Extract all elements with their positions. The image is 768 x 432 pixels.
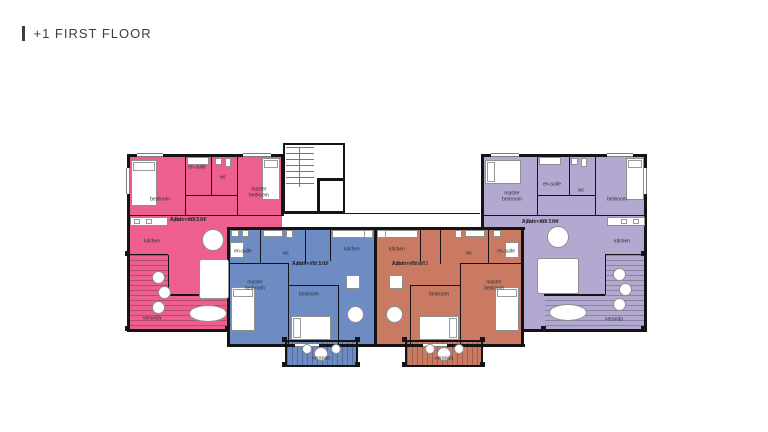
wall xyxy=(488,228,489,264)
room-label-bedroom: bedroom xyxy=(150,197,170,203)
table xyxy=(389,275,403,289)
apartment-101-spec: 2 Bdr - 80.2 m² xyxy=(170,217,207,224)
pillow xyxy=(628,160,642,168)
stairs-icon xyxy=(286,147,314,187)
apartment-104-spec: 2 Bdr - 80.7 m² xyxy=(522,219,559,226)
sink xyxy=(493,230,501,237)
wall xyxy=(374,344,525,347)
room-label-ensuite: en-suite xyxy=(543,182,561,188)
wall xyxy=(410,285,461,286)
wall xyxy=(605,255,606,295)
toilet xyxy=(225,158,231,167)
room-label-kitchen: kitchen xyxy=(389,247,405,253)
room-label-ensuite: en-suite xyxy=(188,165,206,171)
chair xyxy=(619,283,632,296)
toilet xyxy=(581,158,587,167)
pillow xyxy=(264,160,278,168)
chair xyxy=(425,344,435,354)
room-label-master-bedroom: master bedroom xyxy=(479,281,509,292)
wall xyxy=(317,178,345,181)
wall xyxy=(544,294,605,296)
room-label-wc: wc xyxy=(578,188,584,194)
room-label-master-bedroom: master bedroom xyxy=(240,281,270,292)
wall xyxy=(211,155,212,195)
room-label-bedroom: bedroom xyxy=(299,292,319,298)
chair xyxy=(613,268,626,281)
wall xyxy=(127,329,230,332)
room-label-bedroom: bedroom xyxy=(607,197,627,203)
wall xyxy=(228,263,289,264)
chair xyxy=(454,344,464,354)
bathtub xyxy=(539,157,561,165)
wall xyxy=(185,155,186,215)
room-label-ensuite: en-suite xyxy=(234,249,252,255)
stair-rail xyxy=(299,147,300,187)
page-title: +1 FIRST FLOOR xyxy=(34,26,152,41)
sink xyxy=(621,219,627,224)
wall xyxy=(482,215,645,216)
wall xyxy=(338,285,339,345)
window xyxy=(491,153,519,157)
page-title-block: +1 FIRST FLOOR xyxy=(22,26,152,41)
column xyxy=(355,337,360,342)
chair xyxy=(613,298,626,311)
wall xyxy=(288,285,339,286)
wall xyxy=(281,154,284,216)
stove xyxy=(134,219,140,224)
fridge xyxy=(377,230,386,238)
room-label-veranda: veranda xyxy=(312,356,330,362)
wall xyxy=(537,155,538,215)
room-label-bedroom: bedroom xyxy=(429,292,449,298)
wall xyxy=(330,228,331,261)
rug xyxy=(386,306,403,323)
wall xyxy=(460,263,521,264)
veranda-table xyxy=(549,304,587,321)
room-label-kitchen: kitchen xyxy=(344,247,360,253)
dining-table xyxy=(202,229,224,251)
column xyxy=(125,251,130,256)
wall xyxy=(460,263,461,345)
sink xyxy=(571,158,578,165)
wall xyxy=(260,228,261,264)
apartment-102-spec: 2 Bdr - 75.1 m² xyxy=(292,261,329,268)
window xyxy=(126,168,130,194)
sink xyxy=(146,219,152,224)
column xyxy=(355,362,360,367)
window xyxy=(607,153,633,157)
title-accent-bar xyxy=(22,26,25,41)
column xyxy=(641,326,646,331)
floor-plan: bedroom en-suite wc master bedroom kitch… xyxy=(125,140,648,370)
room-label-kitchen: kitchen xyxy=(614,239,630,245)
room-label-veranda: veranda xyxy=(605,317,623,323)
dining-table xyxy=(547,226,569,248)
toilet xyxy=(242,230,249,237)
room-label-kitchen: kitchen xyxy=(144,239,160,245)
wall xyxy=(317,178,320,213)
sofa xyxy=(199,259,229,299)
wall xyxy=(569,155,570,195)
column xyxy=(125,326,130,331)
column xyxy=(225,326,230,331)
chair xyxy=(152,301,165,314)
wall xyxy=(305,228,306,264)
column xyxy=(402,337,407,342)
column xyxy=(480,337,485,342)
window xyxy=(243,153,271,157)
room-label-veranda: veranda xyxy=(143,316,161,322)
column xyxy=(641,251,646,256)
room-label-ensuite: en-suite xyxy=(497,249,515,255)
pillow xyxy=(133,162,155,171)
wall xyxy=(288,263,289,345)
apartment-103-spec: 2 Bdr - 75 m² xyxy=(392,261,424,268)
toilet xyxy=(286,230,293,238)
column xyxy=(541,326,546,331)
wall xyxy=(537,195,595,196)
wall xyxy=(410,285,411,345)
wall xyxy=(128,215,282,216)
table xyxy=(346,275,360,289)
wall xyxy=(595,155,596,215)
wall xyxy=(128,254,168,256)
column xyxy=(282,362,287,367)
bathroom-counter xyxy=(263,230,283,237)
wall xyxy=(440,228,441,264)
wall xyxy=(374,227,377,347)
column xyxy=(402,362,407,367)
chair xyxy=(331,344,341,354)
chair xyxy=(152,271,165,284)
pillow xyxy=(293,318,301,338)
sofa xyxy=(537,258,579,294)
room-label-master-bedroom: master bedroom xyxy=(244,188,274,199)
fridge xyxy=(364,230,373,238)
room-label-wc: wc xyxy=(466,251,472,257)
veranda-table xyxy=(189,305,227,322)
room-label-veranda: veranda xyxy=(435,356,453,362)
chair xyxy=(158,286,171,299)
wall xyxy=(481,154,484,230)
rug xyxy=(347,306,364,323)
stove xyxy=(633,219,639,224)
wall xyxy=(420,228,421,261)
room-label-wc: wc xyxy=(220,175,226,181)
room-label-master-bedroom: master bedroom xyxy=(497,192,527,203)
bathroom-counter xyxy=(465,230,485,237)
column xyxy=(282,337,287,342)
wall xyxy=(237,155,238,215)
column xyxy=(480,362,485,367)
pillow xyxy=(449,318,457,338)
wall xyxy=(542,329,647,332)
room-label-wc: wc xyxy=(283,251,289,257)
window xyxy=(137,153,163,157)
chair xyxy=(302,344,312,354)
toilet xyxy=(455,230,462,238)
sink xyxy=(231,230,239,237)
pillow xyxy=(487,162,495,182)
sink xyxy=(215,158,222,165)
wall xyxy=(605,254,645,256)
wall xyxy=(185,195,237,196)
